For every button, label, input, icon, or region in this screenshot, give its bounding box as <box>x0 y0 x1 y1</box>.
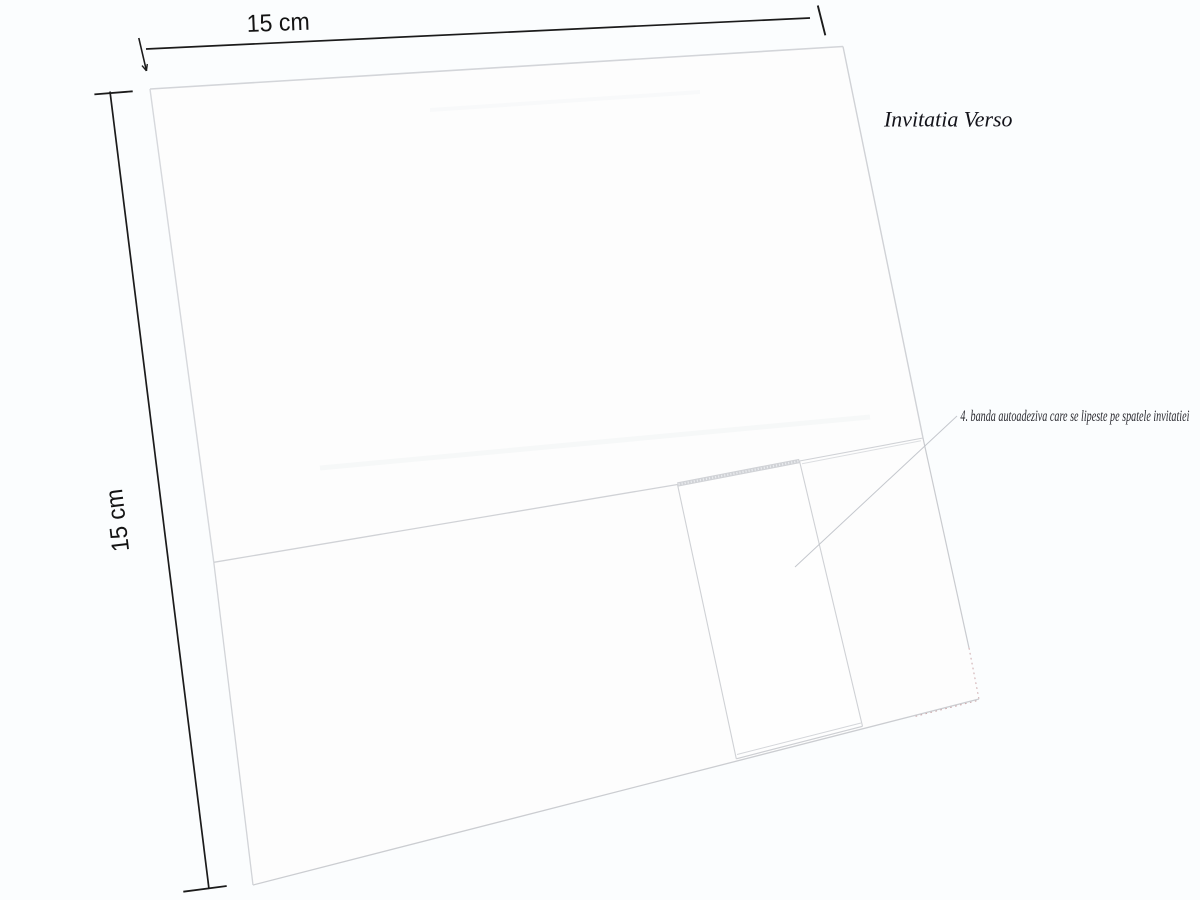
svg-text:4. banda autoadeziva care se l: 4. banda autoadeziva care se lipeste pe … <box>960 408 1189 425</box>
svg-text:15 cm: 15 cm <box>246 9 310 38</box>
svg-text:Invitatia Verso: Invitatia Verso <box>883 106 1012 131</box>
